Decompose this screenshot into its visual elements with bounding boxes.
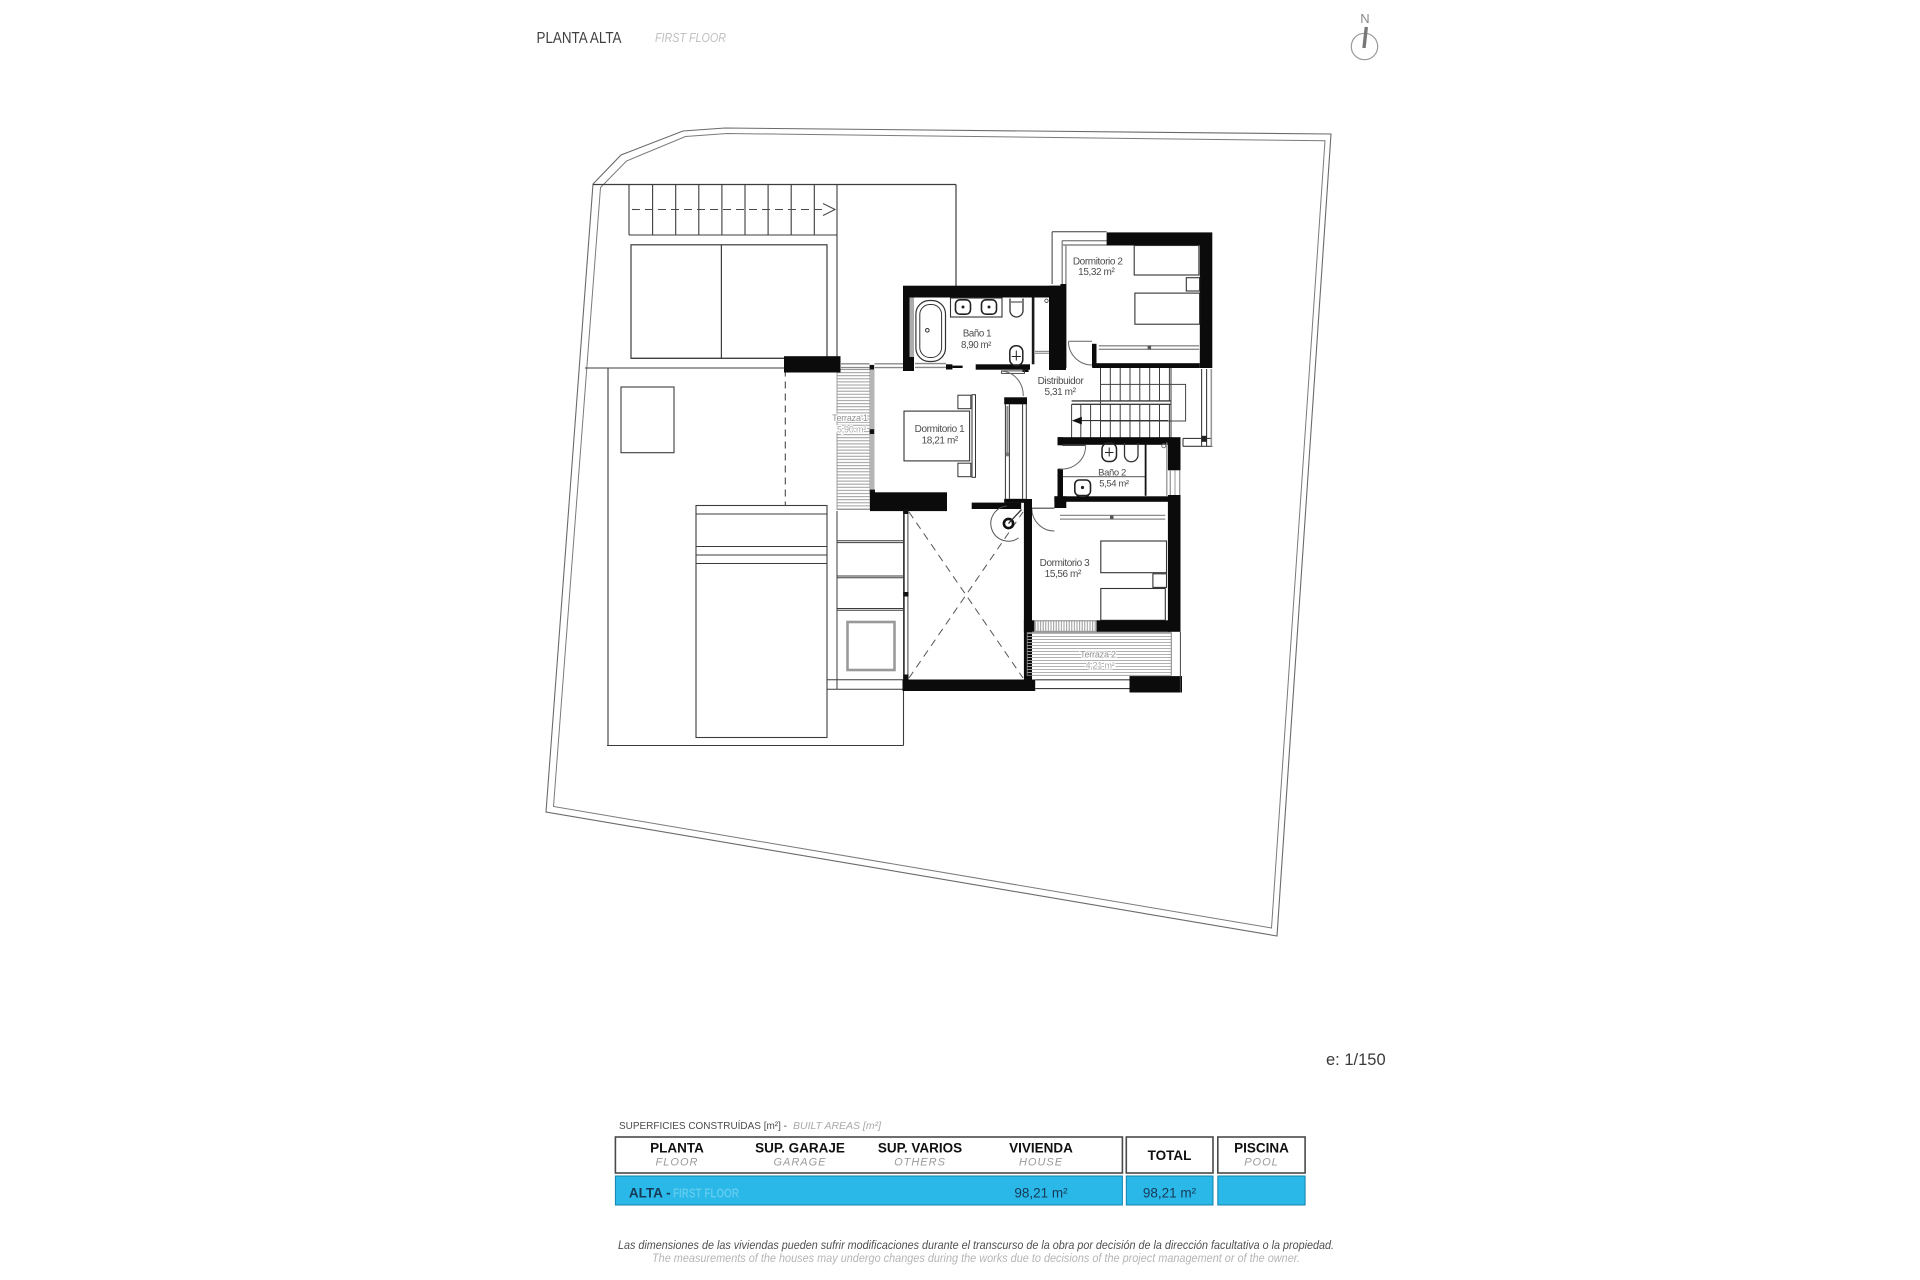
svg-text:8,90 m²: 8,90 m² [961, 340, 992, 351]
svg-text:ALTA -: ALTA - [629, 1186, 671, 1201]
svg-text:SUPERFICIES CONSTRUÍDAS [m²] -: SUPERFICIES CONSTRUÍDAS [m²] - [619, 1119, 787, 1132]
svg-text:Dormitorio 2: Dormitorio 2 [1073, 256, 1123, 267]
svg-text:PISCINA: PISCINA [1234, 1141, 1289, 1156]
svg-text:FLOOR: FLOOR [656, 1157, 699, 1169]
svg-text:Distribuidor: Distribuidor [1038, 376, 1085, 387]
svg-text:POOL: POOL [1244, 1157, 1279, 1169]
svg-text:HOUSE: HOUSE [1019, 1157, 1063, 1169]
svg-text:98,21 m²: 98,21 m² [1143, 1186, 1197, 1201]
svg-text:FIRST FLOOR: FIRST FLOOR [673, 1186, 739, 1201]
svg-text:SUP. GARAJE: SUP. GARAJE [755, 1141, 845, 1156]
svg-text:e: 1/150: e: 1/150 [1326, 1051, 1386, 1069]
svg-text:Las dimensiones de las viviend: Las dimensiones de las viviendas pueden … [618, 1240, 1334, 1252]
svg-text:FIRST FLOOR: FIRST FLOOR [655, 31, 726, 45]
svg-text:Baño 1: Baño 1 [963, 329, 991, 340]
svg-text:Baño 2: Baño 2 [1098, 468, 1126, 479]
svg-text:TOTAL: TOTAL [1148, 1148, 1192, 1163]
svg-text:15,32 m²: 15,32 m² [1078, 267, 1115, 278]
svg-text:15,56 m²: 15,56 m² [1045, 569, 1082, 580]
svg-text:4,21 m²: 4,21 m² [1085, 661, 1114, 671]
svg-text:The measurements of the houses: The measurements of the houses may under… [652, 1253, 1300, 1265]
svg-text:18,21 m²: 18,21 m² [922, 436, 959, 447]
svg-text:Dormitorio 3: Dormitorio 3 [1040, 558, 1090, 569]
svg-text:PLANTA: PLANTA [650, 1141, 704, 1156]
svg-text:GARAGE: GARAGE [773, 1157, 826, 1169]
svg-text:BUILT AREAS [m²]: BUILT AREAS [m²] [793, 1120, 882, 1132]
svg-text:5,90 m²: 5,90 m² [837, 425, 866, 435]
svg-text:Dormitorio 1: Dormitorio 1 [915, 424, 965, 435]
svg-text:PLANTA ALTA: PLANTA ALTA [537, 30, 623, 47]
svg-text:OTHERS: OTHERS [894, 1157, 946, 1169]
svg-text:SUP. VARIOS: SUP. VARIOS [878, 1141, 962, 1156]
svg-text:5,31 m²: 5,31 m² [1044, 387, 1076, 398]
svg-text:Terraza 2: Terraza 2 [1080, 650, 1116, 660]
svg-text:N: N [1360, 11, 1369, 26]
svg-text:5,54 m²: 5,54 m² [1099, 479, 1129, 490]
svg-text:VIVIENDA: VIVIENDA [1009, 1141, 1073, 1156]
svg-text:98,21 m²: 98,21 m² [1014, 1186, 1068, 1201]
svg-text:Terraza 1: Terraza 1 [832, 413, 868, 423]
